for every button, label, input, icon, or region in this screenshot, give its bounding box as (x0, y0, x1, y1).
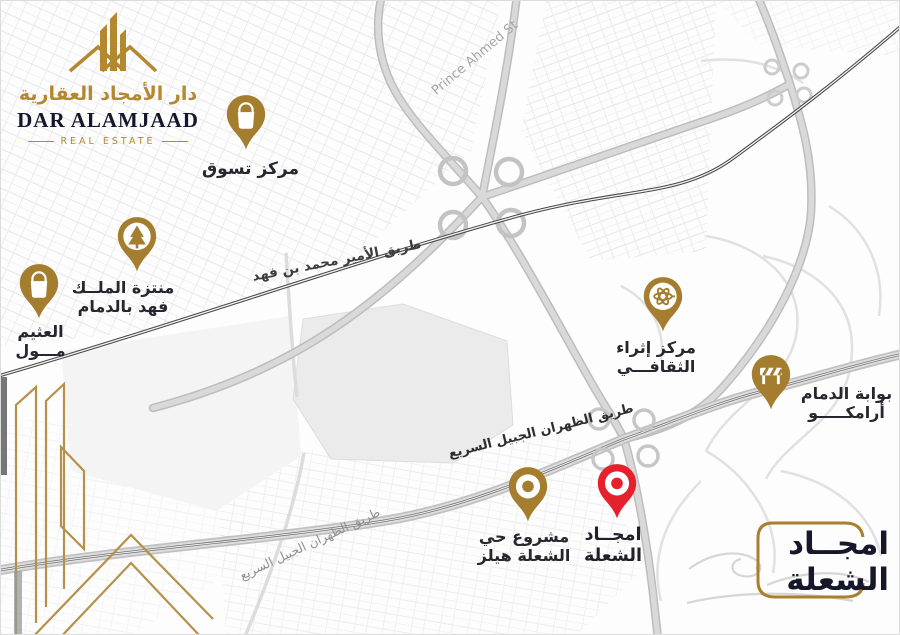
pin-label-shopping-center: مركز تسوق (188, 159, 313, 179)
map-pin-othaim-mall[interactable] (17, 263, 61, 320)
map-pin-king-fahd-park[interactable] (115, 216, 159, 273)
map-pin-shoala-hills[interactable] (506, 466, 550, 523)
pin-label-amjad-alshoala: امجــاد الشعلة (543, 525, 683, 566)
ring-icon (516, 474, 540, 498)
pin-label-aramco-gate: بوابة الدمام أرامكـــــو (794, 385, 899, 423)
amjad-alshoala-logo: امجــاد الشعلة (745, 513, 897, 613)
brand-title-en: DAR ALAMJAAD (13, 108, 203, 133)
brand-subtitle: REAL ESTATE (60, 136, 155, 147)
footer-logo-line2: الشعلة (786, 565, 889, 596)
map-pin-amjad-alshoala[interactable] (595, 463, 639, 520)
map-poster: Prince Ahmed St طريق الأمير محمد بن فهد … (0, 0, 900, 635)
ithra-icon (649, 283, 676, 310)
map-pin-ithra-center[interactable] (641, 276, 685, 333)
brand-title-ar: دار الأمجاد العقارية (13, 83, 203, 105)
pin-label-king-fahd-park: منتزة الملــك فهد بالدمام (53, 279, 193, 317)
ring-icon (605, 471, 629, 495)
building-logo-icon (56, 11, 160, 77)
pin-label-othaim-mall: العثيم مـــول (0, 323, 88, 361)
brand-logo: دار الأمجاد العقارية DAR ALAMJAAD REAL E… (13, 11, 203, 147)
map-pin-shopping-center[interactable] (224, 94, 268, 151)
tree-icon (123, 223, 150, 250)
map-pin-aramco-gate[interactable] (749, 354, 793, 411)
footer-logo-line1: امجــاد (788, 529, 889, 560)
pin-label-ithra-center: مركز إثراء الثقافـــي (586, 339, 726, 377)
